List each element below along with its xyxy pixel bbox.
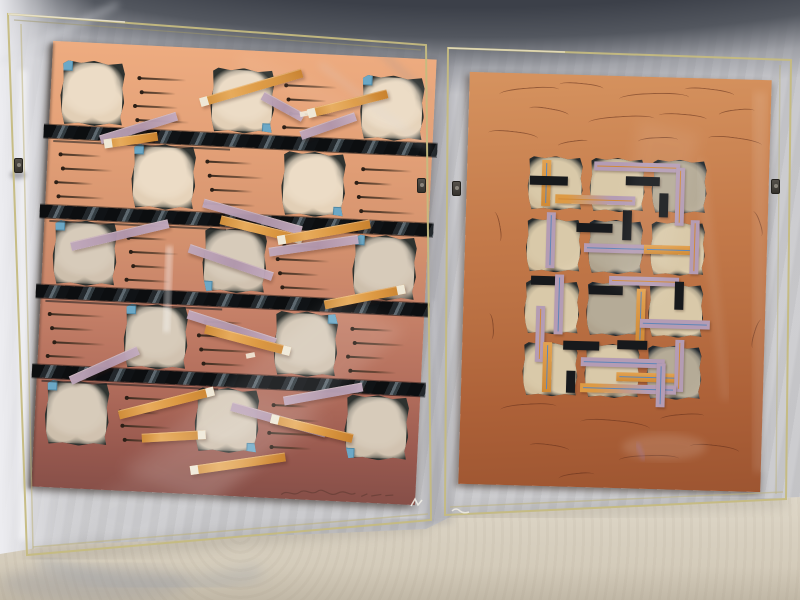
ink-scribble-line <box>280 272 319 276</box>
ink-scribble-line <box>286 84 337 88</box>
lavender-weave-strip <box>609 276 679 287</box>
frame-clip-right-frame-left-edge <box>452 181 461 196</box>
ink-scribble-line <box>363 168 412 172</box>
pinstripe <box>549 215 552 265</box>
black-weave-bar <box>566 371 576 393</box>
ink-scribble-line <box>58 195 104 199</box>
ink-scribble-line <box>359 196 404 200</box>
collage-square <box>280 150 347 218</box>
strip-white-tip <box>104 138 113 148</box>
right-artwork-paper <box>458 72 771 492</box>
ink-scribble-line <box>139 77 186 81</box>
orange-weave-strip <box>635 289 646 343</box>
pinstripe <box>639 292 642 340</box>
lavender-weave-strip <box>545 212 556 268</box>
black-weave-bar <box>589 285 623 295</box>
pinstripe <box>538 309 541 359</box>
strip-white-tip <box>190 465 199 475</box>
strip-white-tip <box>396 285 406 295</box>
ink-scribble-arc <box>749 318 765 349</box>
black-weave-bar <box>576 223 612 233</box>
ink-scribble-arc <box>558 471 595 483</box>
collage-square <box>343 394 410 462</box>
black-weave-bar <box>617 340 647 350</box>
ink-scribble-line <box>133 265 168 269</box>
ink-scribble-arc <box>749 210 765 237</box>
ink-scribble-line <box>274 404 309 408</box>
collage-square <box>359 74 426 142</box>
collage-square-texture <box>132 145 195 209</box>
collage-square-texture <box>361 76 424 140</box>
collage-square <box>51 219 118 287</box>
ink-scribble-line <box>278 258 330 263</box>
motif-square-texture <box>525 281 579 334</box>
pinstripe <box>643 322 707 325</box>
pinstripe <box>647 248 695 251</box>
ink-scribble-line <box>355 342 405 346</box>
black-weave-bar <box>674 282 684 310</box>
left-artwork-paper <box>31 41 436 505</box>
ink-scribble-line <box>356 182 392 186</box>
pinstripe <box>597 165 677 169</box>
blue-corner-tab <box>123 301 137 315</box>
ink-scribble-line <box>135 105 178 109</box>
collage-square <box>43 379 110 447</box>
pinstripe <box>678 171 681 223</box>
collage-square <box>122 303 189 371</box>
central-weave-motif <box>522 156 708 401</box>
blue-corner-tab <box>359 72 373 86</box>
pinstripe <box>612 280 676 283</box>
ink-scribble-arc <box>500 402 556 415</box>
pinstripe <box>678 343 681 389</box>
ink-scribble-line <box>348 356 385 360</box>
strip-white-tip <box>197 430 205 439</box>
ink-scribble-line <box>48 355 86 359</box>
blue-corner-tab <box>341 447 355 461</box>
ink-scribble-arc <box>708 134 763 151</box>
frame-clip-right-frame-right-edge <box>771 179 780 194</box>
ink-scribble-line <box>350 370 396 374</box>
ink-scribble-line <box>282 286 330 290</box>
lavender-weave-strip <box>674 340 684 392</box>
orange-weave-strip <box>542 342 552 392</box>
ink-scribble-line <box>122 425 171 429</box>
black-weave-bar <box>563 341 599 351</box>
collage-square-texture <box>61 61 124 125</box>
ink-scribble-arc <box>580 417 651 436</box>
scribble-cell <box>351 156 426 221</box>
ink-scribble-line <box>54 341 105 345</box>
ink-scribble-arc <box>658 112 706 124</box>
ink-scribble-line <box>142 91 176 95</box>
pinstripe <box>557 277 560 331</box>
photo-two-framed-artworks <box>0 0 800 600</box>
ink-scribble-line <box>61 153 102 157</box>
ink-scribble-line <box>271 446 311 450</box>
pinstripe <box>546 345 549 389</box>
ink-scribble-line <box>352 328 393 332</box>
orange-paper-strip <box>190 452 286 475</box>
collage-square-texture <box>345 396 408 460</box>
blue-corner-tab <box>328 311 342 325</box>
orange-weave-strip <box>616 372 680 383</box>
ink-scribble-line <box>131 251 179 255</box>
ink-scribble-arc <box>689 442 740 458</box>
lavender-weave-strip <box>656 363 666 407</box>
ink-scribble-line <box>129 237 168 241</box>
lavender-weave-strip <box>689 220 700 274</box>
motif-collage-square <box>524 279 580 335</box>
blue-corner-tab <box>60 57 74 71</box>
ink-scribble-arc <box>529 442 570 455</box>
ink-scribble-arc <box>718 107 755 119</box>
ink-scribble-arc <box>559 81 604 93</box>
collage-square-texture <box>46 381 109 445</box>
scribble-cell <box>343 316 418 381</box>
lavender-weave-strip <box>554 274 565 334</box>
collage-square-texture <box>53 221 116 285</box>
scribble-cell <box>51 141 126 206</box>
black-weave-bar <box>659 193 669 217</box>
ink-scribble-arc <box>528 105 569 120</box>
ink-scribble-line <box>210 175 264 180</box>
lavender-weave-strip <box>640 319 710 330</box>
ink-scribble-arc <box>619 454 679 465</box>
ink-scribble-line <box>63 168 113 172</box>
collage-square <box>59 59 126 127</box>
pinstripe <box>619 376 677 379</box>
pinstripe <box>558 198 632 202</box>
blue-corner-tab <box>44 377 58 391</box>
ink-scribble-arc <box>558 139 589 149</box>
strip-white-tip <box>199 96 209 107</box>
blue-corner-tab <box>52 217 66 231</box>
pinstripe <box>659 366 662 404</box>
ink-scribble-arc <box>588 114 654 128</box>
ink-scribble-arc <box>499 85 560 100</box>
frame-clip-left-frame-left-edge <box>14 158 23 173</box>
ink-scribble-line <box>203 363 245 367</box>
strip-white-tip <box>277 235 286 245</box>
ink-scribble-line <box>50 313 105 318</box>
pinstripe <box>693 223 696 271</box>
ink-scribble-line <box>126 279 170 283</box>
ink-scribble-line <box>212 189 253 193</box>
ink-scribble-line <box>56 181 93 185</box>
pinstripe <box>584 361 662 365</box>
ink-scribble-line <box>52 327 94 331</box>
collage-square <box>130 143 197 211</box>
strip-white-tip <box>270 414 280 425</box>
black-weave-bar <box>530 176 568 186</box>
ink-scribble-line <box>361 210 415 215</box>
ink-scribble-line <box>288 98 326 102</box>
ink-scribble-arc <box>638 136 678 146</box>
ink-scribble-arc <box>684 86 735 101</box>
lavender-weave-strip <box>675 168 686 226</box>
ink-scribble-arc <box>660 412 704 423</box>
collage-square-texture <box>124 305 187 369</box>
frame-clip-left-frame-right-edge <box>417 178 426 193</box>
ink-scribble-arc <box>490 211 503 242</box>
ink-scribble-arc <box>485 313 495 340</box>
scribble-cell <box>43 301 118 366</box>
ink-scribble-arc <box>488 128 539 144</box>
blue-corner-tab <box>246 443 260 457</box>
ink-scribble-arc <box>619 92 689 106</box>
black-weave-bar <box>626 176 660 186</box>
black-weave-bar <box>622 210 632 240</box>
ink-scribble-line <box>207 161 252 165</box>
